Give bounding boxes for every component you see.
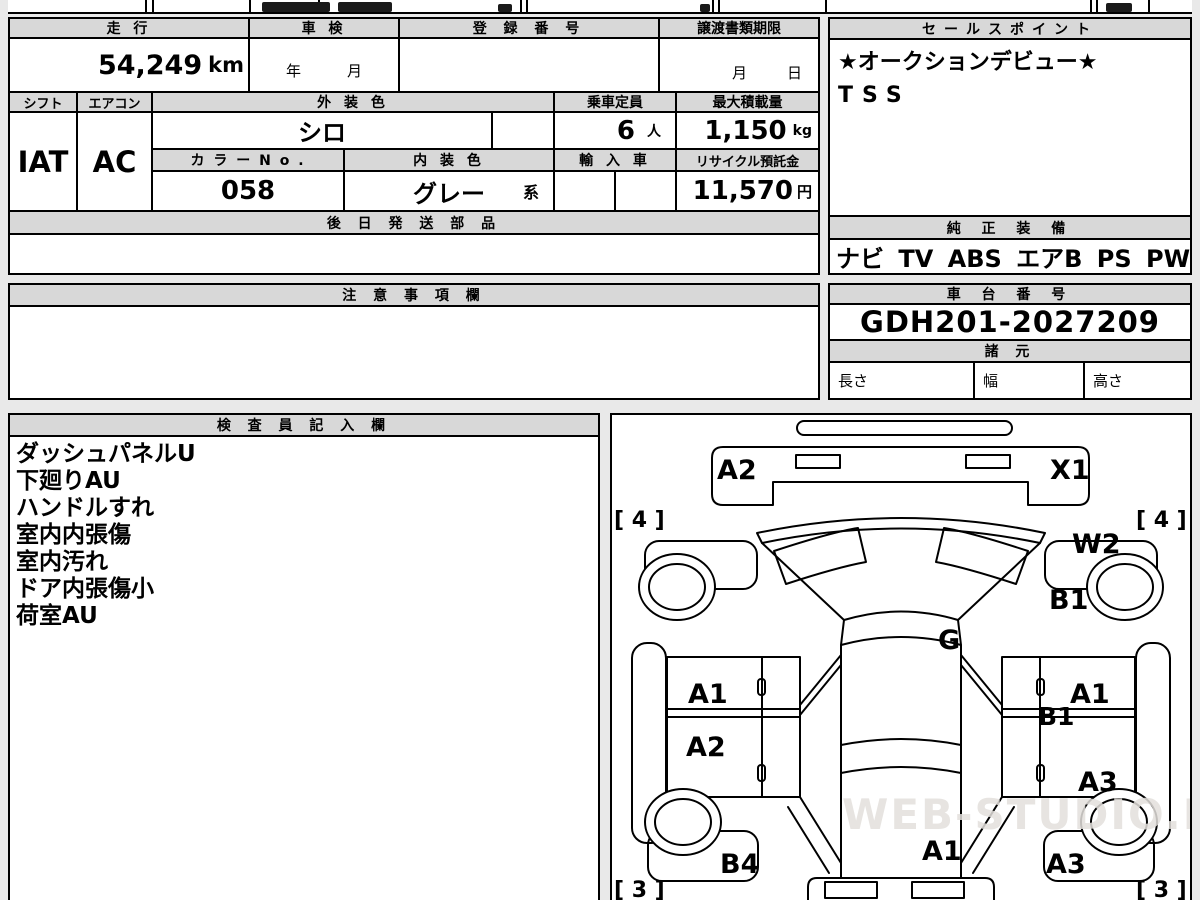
cutoff-ink-fragment [1106,3,1132,12]
later-parts-value [10,235,818,273]
inspector-note-line: 室内内張傷 [16,522,592,549]
recycle-deposit-value: 11,570円 [677,172,818,212]
damage-label-rear-panel: A1 [922,836,962,867]
cutoff-row [8,0,1192,14]
windshield-pane-right [936,528,1028,584]
inspector-note-line: ドア内張傷小 [16,576,592,603]
capacity-unit: 人 [647,121,661,141]
dimension-width-cell: 幅 [975,363,1085,398]
sales-points-panel: セールスポイント ★オークションデビュー★ TSS 純 正 装 備 ナビ TV … [828,17,1192,275]
fold-lines-front-left [800,655,841,715]
side-panel-left [667,657,800,797]
cutoff-ink-fragment [262,2,330,12]
damage-label-rear-quarter-right: A3 [1046,849,1086,880]
dimensions-header: 諸 元 [830,341,1190,363]
mileage-header: 走 行 [10,19,250,39]
tire-depth-front-left: [ 4 ] [614,508,665,533]
damage-label-front-door-right: A1 [1070,679,1110,710]
transfer-deadline-value: 月 日 [660,39,818,93]
inspector-notes-panel: 検 査 員 記 入 欄 ダッシュパネルU 下廻りAU ハンドルすれ 室内内張傷 … [8,413,600,900]
damage-label-slide-door-left: A2 [686,732,726,763]
tire-depth-front-right: [ 4 ] [1136,508,1187,533]
interior-color-value: グレー 系 [345,172,555,212]
roof-strip [797,421,1012,435]
inspection-header: 車 検 [250,19,400,39]
inspector-note-line: 室内汚れ [16,549,592,576]
deadline-day-label: 日 [787,62,802,83]
inspector-note-line: ハンドルすれ [16,495,592,522]
auction-sheet: 走 行 車 検 登 録 番 号 譲渡書類期限 54,249km 年 月 月 日 … [0,0,1200,900]
damage-label-quarter-left: B4 [720,849,759,880]
chassis-panel: 車 台 番 号 GDH201-2027209 諸 元 長さ 幅 高さ [828,283,1192,400]
damage-label-front-door-left: A1 [688,679,728,710]
color-no-value: 058 [153,172,345,212]
inspector-note-line: ダッシュパネルU [16,441,592,468]
damage-label-pillar-right: B1 [1049,585,1088,616]
aircon-header: エアコン [78,93,153,113]
front-panel [712,447,1089,505]
damage-label-front-fender-right: W2 [1072,529,1121,560]
inspector-note-line: 下廻りAU [16,468,592,495]
cutoff-ink-fragment [498,4,512,12]
capacity-header: 乗車定員 [555,93,677,113]
notes-panel: 注 意 事 項 欄 [8,283,820,400]
sales-point-line: TSS [838,79,1182,112]
damage-label-molding-right: B1 [1038,702,1074,731]
fold-lines-front-right [961,655,1002,715]
chassis-number-value: GDH201-2027209 [830,305,1190,341]
inspection-month-label: 月 [347,60,362,81]
inspector-notes-body: ダッシュパネルU 下廻りAU ハンドルすれ 室内内張傷 室内汚れ ドア内張傷小 … [10,437,598,900]
registration-value [400,39,660,93]
import-car-header: 輸 入 車 [555,150,677,172]
windshield-top-band [757,518,1045,543]
capacity-value: 6人 [555,113,677,150]
notes-header: 注 意 事 項 欄 [10,285,818,307]
exterior-color-value: シロ [153,113,493,150]
genuine-equipment-value: ナビ TV ABS エアB PS PW [830,240,1190,273]
transfer-deadline-header: 譲渡書類期限 [660,19,818,39]
recycle-deposit-unit: 円 [797,181,812,202]
import-car-cell-2 [616,172,677,212]
mileage-unit: km [208,53,244,77]
headlight-left [796,455,840,468]
cabin-band [841,739,961,773]
interior-color-header: 内 装 色 [345,150,555,172]
exterior-color-header: 外 装 色 [153,93,555,113]
damage-label-front-bumper-right: X1 [1050,455,1090,486]
damage-diagram: WEB-STUDIO.RU A2 X1 [ 4 ] [ 4 ] W2 B1 G … [612,415,1190,900]
inspector-note-line: 荷室AU [16,603,592,630]
cutoff-ink-fragment [338,2,392,12]
damage-diagram-panel: WEB-STUDIO.RU A2 X1 [ 4 ] [ 4 ] W2 B1 G … [610,413,1192,900]
shift-value: IAT [10,113,78,212]
chassis-number-header: 車 台 番 号 [830,285,1190,305]
damage-label-front-bumper-left: A2 [717,455,757,486]
watermark: WEB-STUDIO.RU [842,790,1190,839]
tire-depth-rear-left: [ 3 ] [614,878,665,900]
max-load-value: 1,150kg [677,113,818,150]
damage-label-rear-door-right: A3 [1078,767,1118,798]
inspection-year-label: 年 [286,60,301,81]
cutoff-ink-fragment [700,4,710,12]
windshield-sides [762,543,1040,620]
windshield-pane-left [774,528,866,584]
max-load-header: 最大積載量 [677,93,818,113]
color-no-header: カ ラ ー N o . [153,150,345,172]
inspection-value: 年 月 [250,39,400,93]
sales-points-header: セールスポイント [830,19,1190,40]
dimension-height-cell: 高さ [1085,363,1190,398]
rear-bumper-rect-right [912,882,964,898]
rear-bumper-rect-left [825,882,877,898]
mileage-value: 54,249km [10,39,250,93]
aircon-value: AC [78,113,153,212]
deadline-month-label: 月 [732,62,747,83]
genuine-equipment-header: 純 正 装 備 [830,217,1190,240]
tire-depth-rear-right: [ 3 ] [1136,878,1187,900]
headlight-right [966,455,1010,468]
registration-header: 登 録 番 号 [400,19,660,39]
import-car-cell-1 [555,172,616,212]
inspector-notes-header: 検 査 員 記 入 欄 [10,415,598,437]
damage-label-cowl: G [938,625,960,656]
dimension-length-cell: 長さ [830,363,975,398]
notes-body [10,307,818,398]
vehicle-data-table: 走 行 車 検 登 録 番 号 譲渡書類期限 54,249km 年 月 月 日 … [8,17,820,275]
sales-point-line: ★オークションデビュー★ [838,46,1182,79]
fold-lines-rear-left [788,797,841,873]
max-load-unit: kg [793,123,812,139]
later-parts-header: 後 日 発 送 部 品 [10,212,818,235]
recycle-deposit-header: リサイクル預託金 [677,150,818,172]
shift-header: シフト [10,93,78,113]
exterior-color-extra-cell [493,113,555,150]
interior-color-suffix: 系 [523,179,539,203]
side-panel-left-divider [667,657,800,797]
sales-points-body: ★オークションデビュー★ TSS [830,40,1190,217]
